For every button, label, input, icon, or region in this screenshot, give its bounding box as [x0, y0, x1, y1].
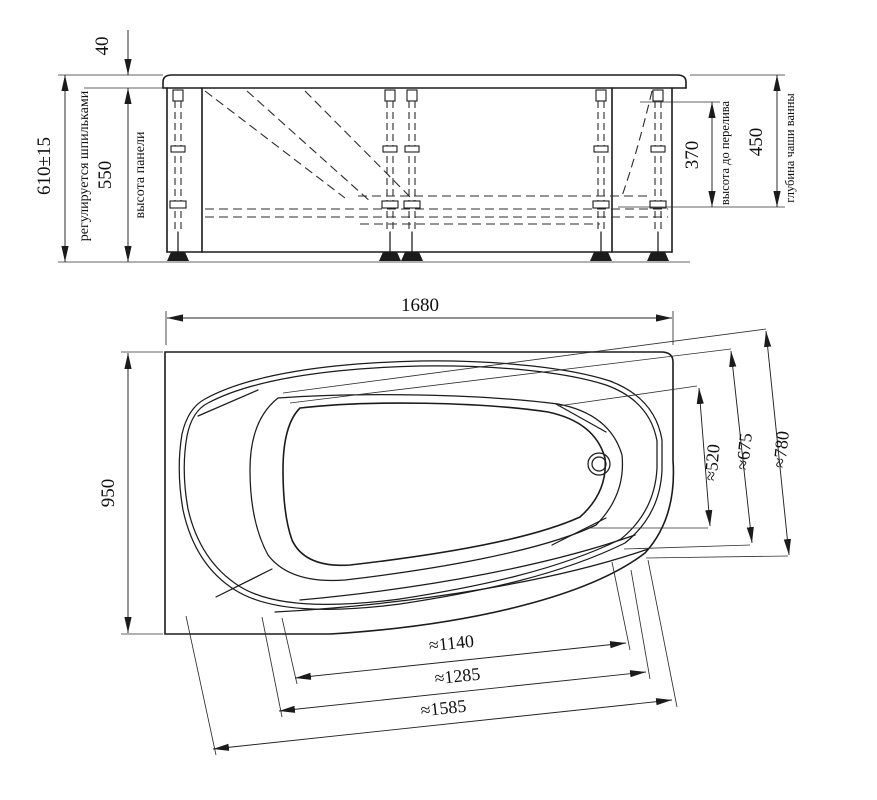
side-view: 40 610±15 регулируется шпильками 550 выс…	[34, 30, 797, 262]
dim-total-height: 610±15	[34, 137, 55, 195]
drain-icon	[588, 453, 610, 475]
plan-view: 1680 950 ≈520 ≈675 ≈780	[98, 295, 793, 755]
deck-outline	[165, 352, 673, 634]
dim-width: 950	[98, 479, 119, 508]
dim-length: 1680	[401, 295, 439, 316]
drawing-canvas: 40 610±15 регулируется шпильками 550 выс…	[0, 0, 877, 800]
dim-right-middle: ≈675	[732, 432, 756, 471]
dim-bottom-outer: ≈1585	[420, 696, 468, 721]
bowl-edge	[283, 403, 605, 565]
leg	[167, 90, 189, 261]
dim-panel-height: 550	[95, 161, 116, 190]
dim-right-outer: ≈780	[769, 430, 793, 469]
bathtub-technical-drawing: 40 610±15 регулируется шпильками 550 выс…	[0, 0, 877, 800]
dim-bottom-middle: ≈1285	[434, 664, 482, 689]
label-bowl-depth: глубина чаши ванны	[783, 93, 797, 203]
leg	[647, 90, 669, 261]
dim-right-inner: ≈520	[700, 443, 723, 481]
dim-overflow-height: 370	[682, 141, 703, 170]
note-total-height: регулируется шпильками	[77, 90, 92, 241]
dim-rim-height: 40	[92, 37, 113, 56]
leg	[379, 90, 401, 261]
adjustable-legs	[167, 90, 669, 261]
dim-bowl-depth: 450	[746, 128, 767, 157]
label-overflow-height: высота до перелива	[718, 100, 732, 205]
leg	[401, 90, 423, 261]
front-panel	[167, 88, 672, 252]
tub-rim-profile	[163, 75, 686, 88]
label-panel-height: высота панели	[133, 131, 148, 218]
dim-bottom-inner: ≈1140	[428, 631, 475, 656]
rim-outer-edge	[179, 361, 662, 609]
plan-dimensions: 1680 950 ≈520 ≈675 ≈780	[98, 295, 793, 755]
leg	[590, 90, 612, 261]
bowl-bottom-contours	[275, 535, 648, 612]
